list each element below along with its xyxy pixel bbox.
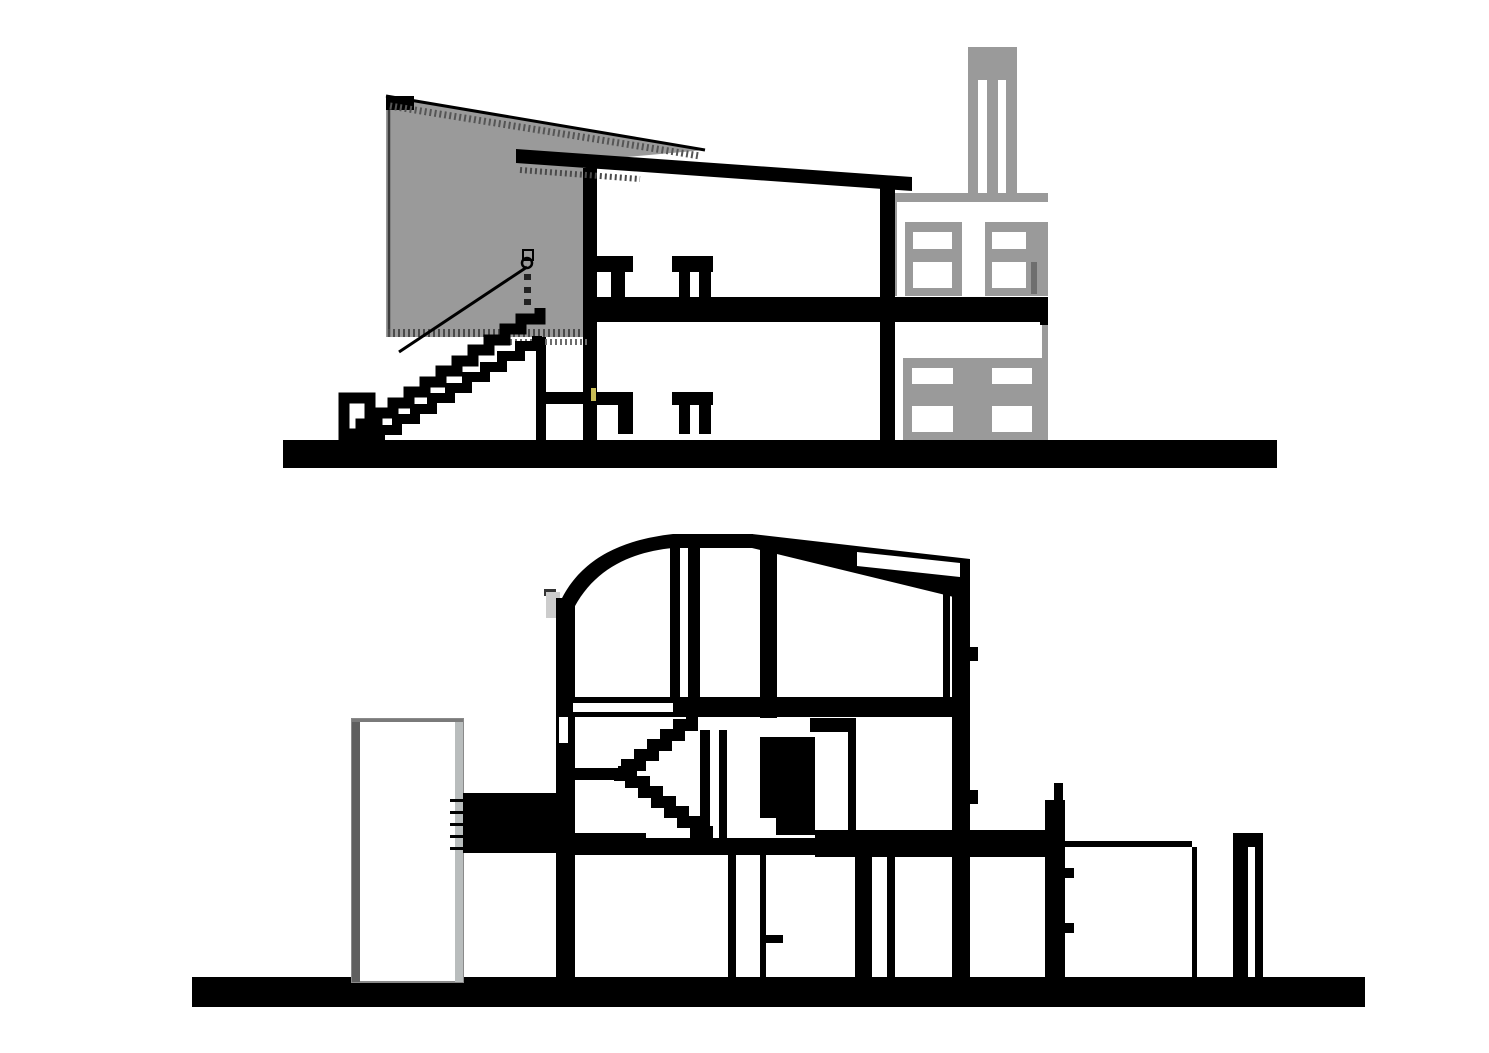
stair-landing — [575, 768, 620, 780]
door-jamb — [719, 730, 727, 838]
door-tick — [766, 935, 783, 943]
chimney-pillar — [968, 80, 978, 193]
post-cap — [1233, 833, 1263, 847]
window-pane — [992, 368, 1032, 384]
factory-right-strip — [1042, 322, 1048, 358]
dark-window-slot — [1031, 262, 1037, 294]
door-lintel — [810, 718, 848, 732]
baluster-mark — [524, 299, 531, 305]
lower-floor-doors — [597, 392, 713, 434]
annex-post — [1045, 800, 1065, 977]
annex-roof-line — [1065, 841, 1192, 847]
wall-tick — [970, 647, 978, 661]
window-pane — [992, 232, 1026, 249]
porch-wall — [536, 337, 546, 440]
upper-floor-doors — [597, 256, 713, 298]
door-lintel — [672, 392, 713, 405]
post-top-stub — [1054, 783, 1063, 803]
porch-lintel — [536, 392, 597, 404]
upper-section-drawing — [283, 47, 1277, 468]
wall-line — [728, 855, 736, 977]
stair-stringer — [362, 336, 537, 440]
side-annex — [1045, 783, 1263, 977]
dog-leg-stair — [614, 712, 707, 843]
window-pane — [992, 262, 1026, 288]
drawing-canvas — [0, 0, 1489, 1053]
sections-figure — [0, 0, 1489, 1053]
baluster-mark — [524, 287, 531, 293]
door-leaf — [611, 272, 625, 298]
panel-top-edge — [352, 719, 463, 722]
door-jamb — [848, 718, 856, 838]
window-pane — [912, 368, 953, 384]
hatch-tick — [450, 823, 463, 826]
stair-run-up — [614, 712, 692, 775]
central-wall — [760, 548, 777, 718]
door-lintel — [597, 392, 633, 405]
door-jamb — [679, 405, 690, 434]
wall-line — [887, 855, 895, 977]
panel-face — [352, 719, 463, 982]
right-wall — [952, 560, 970, 977]
window-pane — [912, 406, 953, 432]
hatch-tick — [450, 847, 463, 850]
wall-window-notch — [559, 713, 568, 743]
hatch-tick — [450, 835, 463, 838]
door-lintel — [597, 256, 633, 272]
door-jamb — [679, 272, 690, 298]
window-pane — [913, 232, 952, 249]
wall-tick — [970, 790, 978, 804]
baluster-mark — [524, 274, 531, 280]
lower-section-drawing — [192, 534, 1365, 1007]
hatch-tick — [450, 799, 463, 802]
wall-line — [855, 855, 872, 977]
post-tick — [1065, 868, 1074, 878]
door-jamb — [699, 272, 711, 298]
left-wall — [556, 598, 575, 977]
post-tick — [1065, 923, 1074, 933]
door-jamb — [618, 405, 633, 434]
railing-balusters — [524, 274, 531, 305]
panel-right-edge — [455, 719, 463, 982]
factory-parapet — [895, 193, 1048, 202]
column-line — [688, 548, 700, 697]
stair-run-down — [618, 772, 707, 843]
window-mullion — [943, 592, 950, 698]
end-post — [1255, 847, 1263, 977]
ground-line — [283, 440, 1277, 468]
door-jamb — [700, 730, 710, 838]
yellow-door-handle — [591, 388, 596, 401]
curved-roof — [556, 534, 753, 612]
column-line — [670, 535, 680, 697]
basement-walls — [728, 855, 895, 977]
window-pane — [913, 262, 952, 288]
bridge-beam — [463, 793, 558, 853]
right-wall — [880, 184, 895, 440]
door-lintel — [672, 256, 713, 272]
slab-slot — [573, 703, 673, 712]
chimney-pillar — [1006, 80, 1017, 193]
handle-cap — [591, 384, 596, 388]
chimney-cap — [968, 47, 1017, 80]
hatch-tick — [450, 811, 463, 814]
door-jamb — [699, 405, 711, 434]
chimney-pillar — [987, 80, 998, 193]
floor-slab — [577, 297, 1048, 322]
lower-slab-right — [815, 830, 1045, 857]
panel-left-edge — [352, 719, 360, 982]
freestanding-panel — [352, 719, 463, 982]
end-post — [1233, 847, 1248, 977]
wall-line — [760, 855, 766, 977]
window-pane — [992, 406, 1032, 432]
thin-post — [1192, 847, 1197, 977]
shaft-notch — [760, 818, 776, 835]
